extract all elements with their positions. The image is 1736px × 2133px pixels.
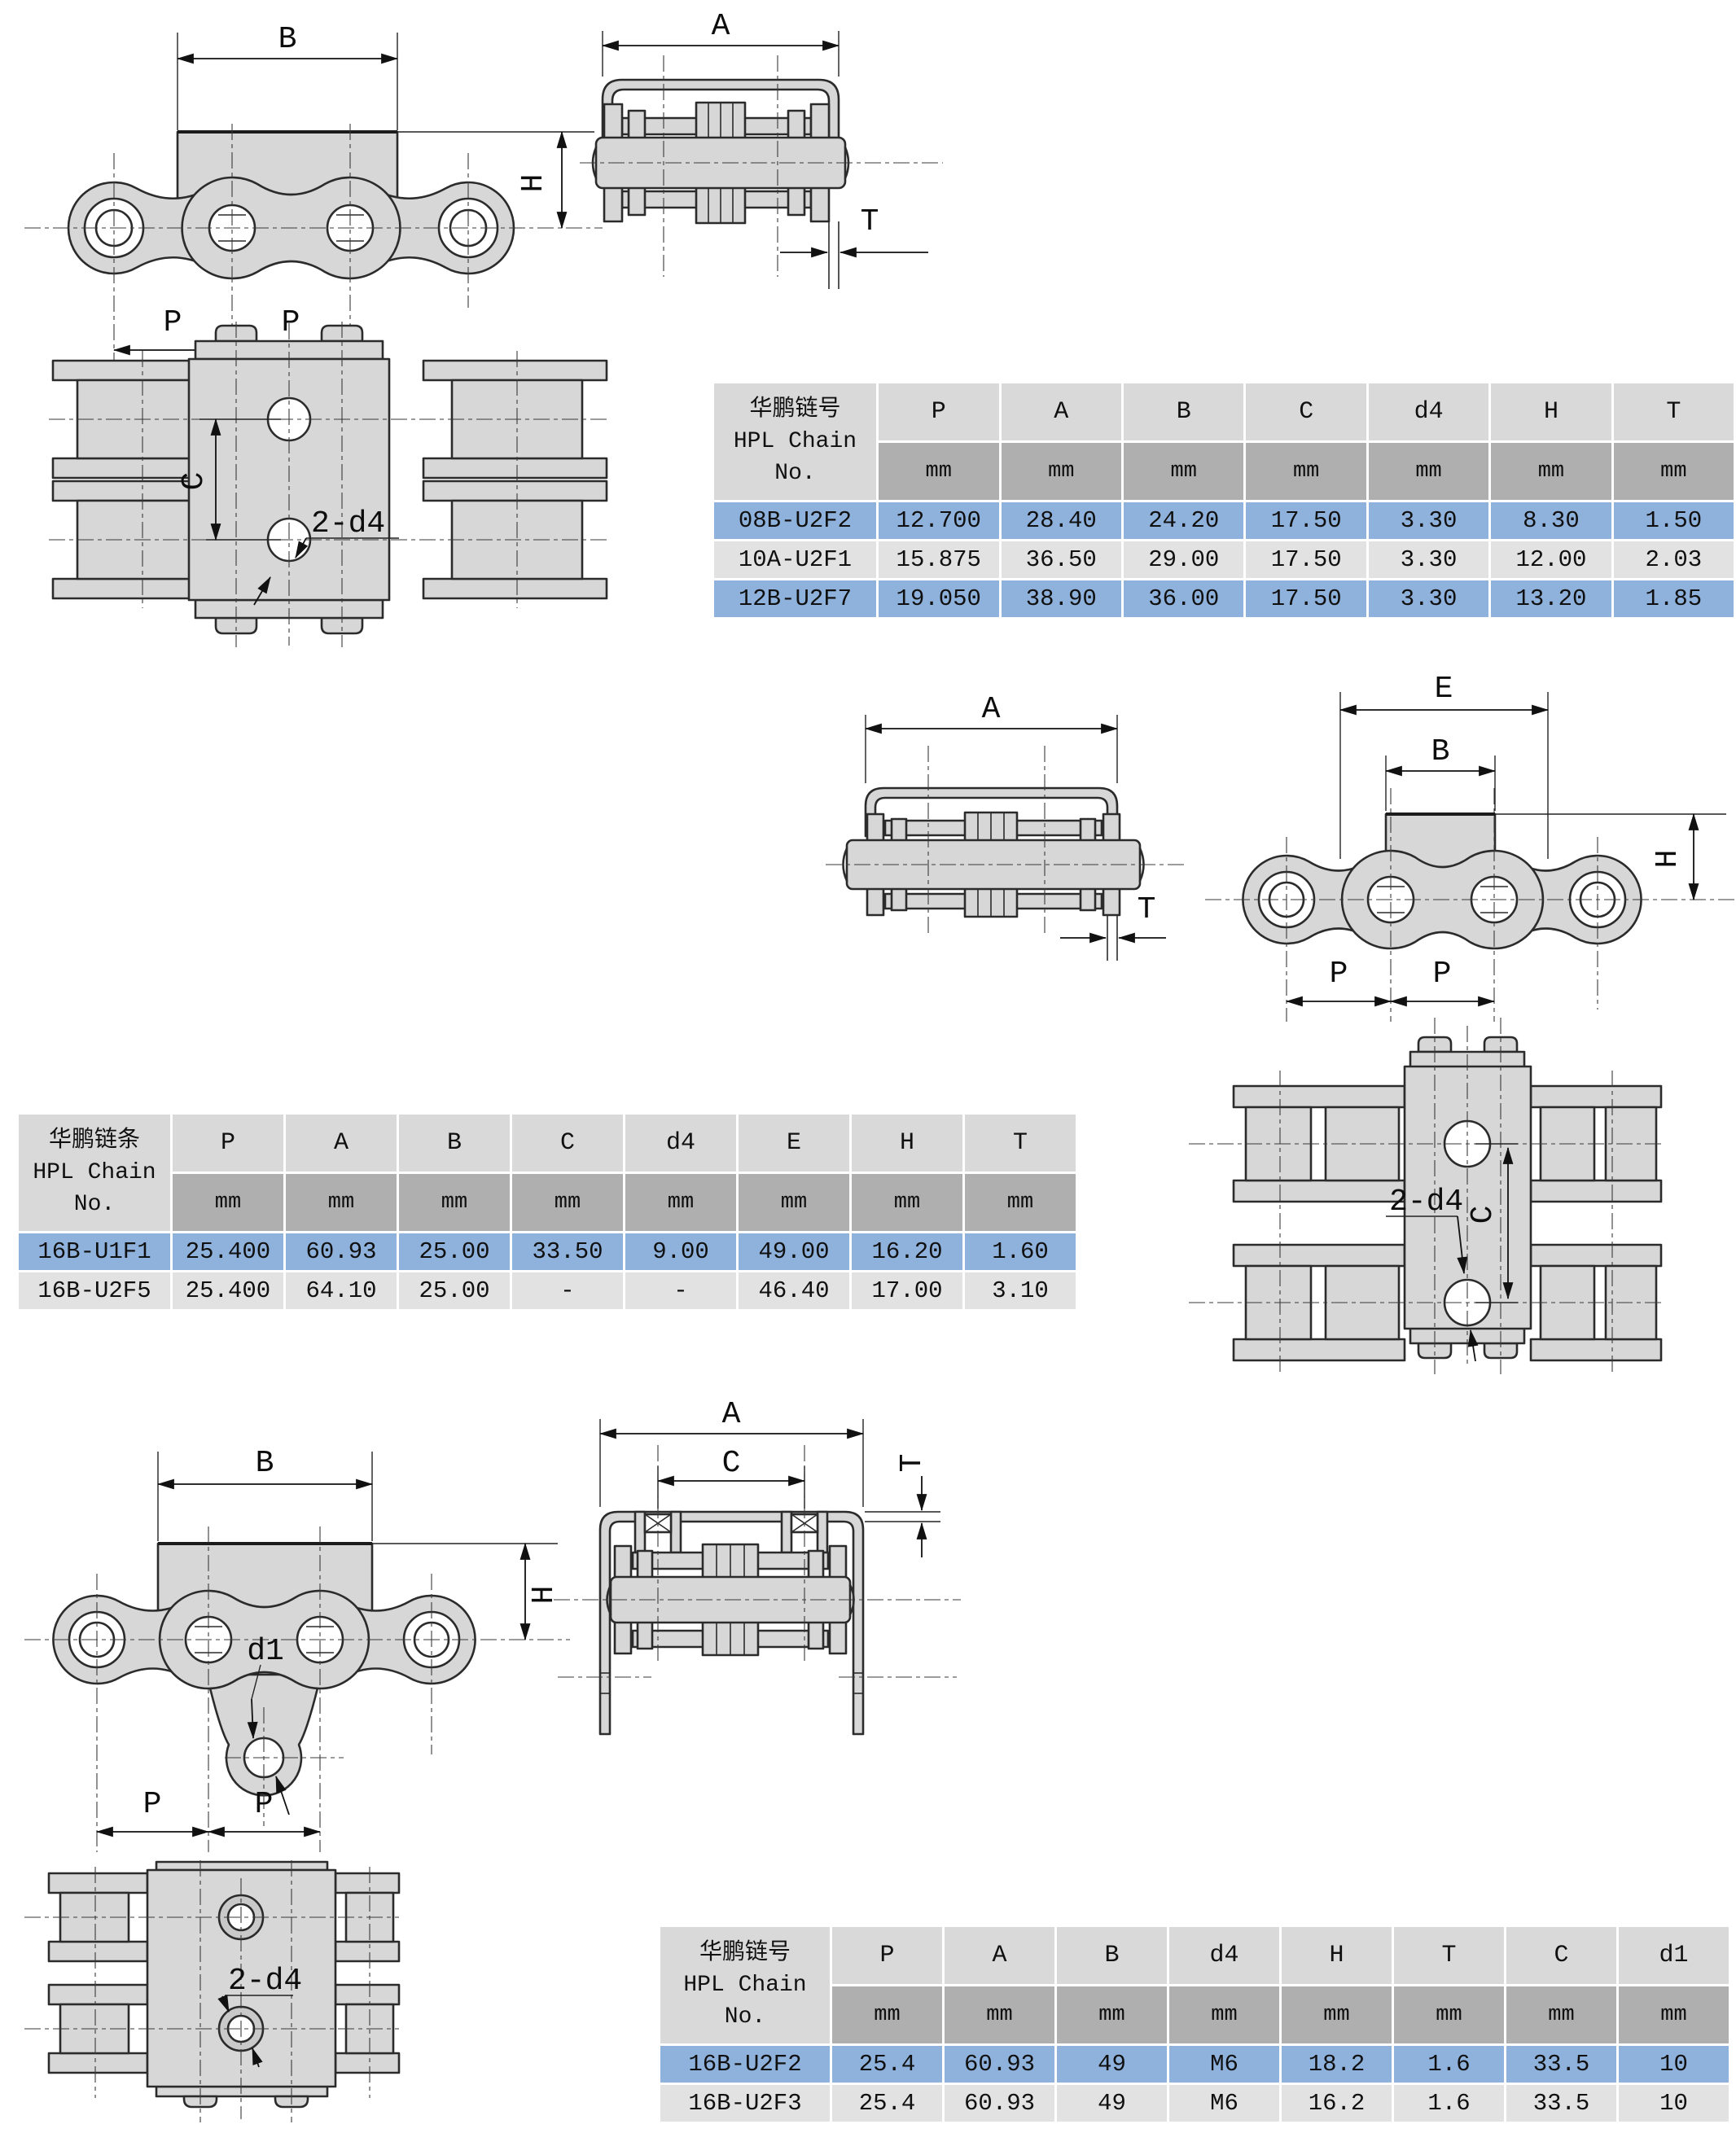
unit-cell: mm <box>1002 443 1121 500</box>
dim-label-t: T <box>895 1454 930 1473</box>
value-cell: 46.40 <box>739 1272 849 1309</box>
col-header: d4 <box>1169 1927 1279 1984</box>
value-cell: 9.00 <box>625 1233 736 1270</box>
dim-label-e: E <box>1435 672 1453 707</box>
spec-table-1: 华鹏链号HPL ChainNo. P A B C d4 H T mm mm mm… <box>712 381 1736 620</box>
value-cell: 1.6 <box>1394 2085 1504 2122</box>
value-cell: 25.00 <box>399 1272 510 1309</box>
table-row: 16B-U1F1 25.400 60.93 25.00 33.50 9.00 4… <box>19 1233 1076 1270</box>
diagram-plan-view-bottom: 2-d4 <box>24 1860 399 2133</box>
unit-cell: mm <box>1506 1986 1616 2043</box>
value-cell: 33.5 <box>1506 2085 1616 2122</box>
dim-label-c: C <box>177 472 212 491</box>
unit-cell: mm <box>1246 443 1366 500</box>
col-header: C <box>1506 1927 1616 1984</box>
table-row: 16B-U2F3 25.4 60.93 49 M6 16.2 1.6 33.5 … <box>660 2085 1729 2122</box>
dim-label-b: B <box>278 22 297 57</box>
unit-cell: mm <box>286 1174 397 1231</box>
value-cell: 49.00 <box>739 1233 849 1270</box>
diagram-end-view-bottom: A C T <box>554 1396 961 1779</box>
col-header: P <box>173 1115 283 1172</box>
value-cell: 17.50 <box>1246 580 1366 617</box>
dim-label-a: A <box>722 1397 741 1432</box>
diagram-side-view-top: B H P P <box>24 8 603 374</box>
value-cell: 8.30 <box>1491 502 1611 539</box>
diagram-plan-view-middle: C 2-d4 <box>1189 1001 1661 1376</box>
unit-cell: mm <box>1282 1986 1392 2043</box>
value-cell: 33.5 <box>1506 2046 1616 2083</box>
table-row: 16B-U2F2 25.4 60.93 49 M6 18.2 1.6 33.5 … <box>660 2046 1729 2083</box>
col-header: T <box>1394 1927 1504 1984</box>
diagram-plan-view-top: C 2-d4 <box>49 322 611 647</box>
dim-label-h: H <box>516 174 551 193</box>
unit-cell: mm <box>1124 443 1243 500</box>
unit-cell: mm <box>965 1174 1076 1231</box>
chain-side-shape <box>68 132 514 278</box>
value-cell: 25.4 <box>832 2046 942 2083</box>
dim-label-p2: P <box>255 1787 274 1822</box>
chain-plan-shape <box>49 1862 399 2107</box>
value-cell: 60.93 <box>286 1233 397 1270</box>
chain-no-cell: 16B-U2F2 <box>660 2046 830 2083</box>
col-header: A <box>945 1927 1054 1984</box>
dim-label-2d4: 2-d4 <box>228 1964 302 1999</box>
value-cell: 49 <box>1057 2085 1167 2122</box>
unit-cell: mm <box>1614 443 1734 500</box>
chain-end-shape <box>593 80 848 289</box>
value-cell: 3.30 <box>1369 502 1488 539</box>
col-header: A <box>286 1115 397 1172</box>
value-cell: - <box>512 1272 623 1309</box>
col-header: B <box>1057 1927 1167 1984</box>
chain-no-cell: 16B-U2F5 <box>19 1272 170 1309</box>
col-header: E <box>739 1115 849 1172</box>
value-cell: 10 <box>1619 2046 1729 2083</box>
chain-end-shape <box>844 788 1144 961</box>
col-header: H <box>1491 383 1611 440</box>
value-cell: 36.00 <box>1124 580 1243 617</box>
value-cell: 16.2 <box>1282 2085 1392 2122</box>
unit-cell: mm <box>1169 1986 1279 2043</box>
value-cell: 17.50 <box>1246 502 1366 539</box>
unit-cell: mm <box>1057 1986 1167 2043</box>
chain-side-shape <box>1243 814 1641 948</box>
value-cell: 18.2 <box>1282 2046 1392 2083</box>
table-header-row: 华鹏链号HPL ChainNo. P A B C d4 H T <box>714 383 1734 440</box>
table-header-row: 华鹏链号HPL ChainNo. P A B d4 H T C d1 <box>660 1927 1729 1984</box>
table-row: 08B-U2F2 12.700 28.40 24.20 17.50 3.30 8… <box>714 502 1734 539</box>
unit-cell: mm <box>852 1174 962 1231</box>
chain-no-cell: 16B-U2F3 <box>660 2085 830 2122</box>
dim-label-p1: P <box>1330 957 1348 992</box>
value-cell: 49 <box>1057 2046 1167 2083</box>
dim-label-d1: d1 <box>247 1634 284 1669</box>
unit-cell: mm <box>945 1986 1054 2043</box>
dim-label-b: B <box>1431 734 1450 769</box>
diagram-side-view-bottom: B H d1 P P <box>24 1413 570 1856</box>
chain-plan-shape <box>53 326 607 633</box>
dim-label-p2: P <box>1433 957 1452 992</box>
value-cell: 38.90 <box>1002 580 1121 617</box>
value-cell: 15.875 <box>879 541 999 578</box>
table-header-row: 华鹏链条HPL ChainNo. P A B C d4 E H T <box>19 1115 1076 1172</box>
unit-cell: mm <box>399 1174 510 1231</box>
value-cell: 29.00 <box>1124 541 1243 578</box>
unit-cell: mm <box>1491 443 1611 500</box>
col-header: P <box>879 383 999 440</box>
chain-no-cell: 08B-U2F2 <box>714 502 876 539</box>
value-cell: 3.30 <box>1369 580 1488 617</box>
value-cell: 1.6 <box>1394 2046 1504 2083</box>
value-cell: 16.20 <box>852 1233 962 1270</box>
value-cell: 25.400 <box>173 1233 283 1270</box>
col-header: H <box>852 1115 962 1172</box>
value-cell: 17.00 <box>852 1272 962 1309</box>
value-cell: 1.85 <box>1614 580 1734 617</box>
col-header: T <box>1614 383 1734 440</box>
dim-label-2d4: 2-d4 <box>311 506 385 541</box>
value-cell: 13.20 <box>1491 580 1611 617</box>
value-cell: 1.60 <box>965 1233 1076 1270</box>
unit-cell: mm <box>512 1174 623 1231</box>
col-header: T <box>965 1115 1076 1172</box>
chain-no-cell: 10A-U2F1 <box>714 541 876 578</box>
unit-cell: mm <box>173 1174 283 1231</box>
dim-label-a: A <box>982 692 1001 727</box>
unit-cell: mm <box>739 1174 849 1231</box>
unit-cell: mm <box>1619 1986 1729 2043</box>
value-cell: 17.50 <box>1246 541 1366 578</box>
dimensions: A C T <box>600 1397 940 1557</box>
unit-cell: mm <box>832 1986 942 2043</box>
value-cell: 24.20 <box>1124 502 1243 539</box>
value-cell: M6 <box>1169 2046 1279 2083</box>
col-header: C <box>1246 383 1366 440</box>
dim-label-b: B <box>256 1446 274 1481</box>
value-cell: 19.050 <box>879 580 999 617</box>
dim-label-p1: P <box>143 1787 162 1822</box>
dim-label-2d4: 2-d4 <box>1389 1185 1463 1220</box>
chain-no-header: 华鹏链号HPL ChainNo. <box>660 1927 830 2043</box>
dim-label-c: C <box>1466 1206 1501 1224</box>
col-header: d4 <box>1369 383 1488 440</box>
value-cell: 28.40 <box>1002 502 1121 539</box>
value-cell: 25.4 <box>832 2085 942 2122</box>
chain-no-cell: 12B-U2F7 <box>714 580 876 617</box>
chain-no-header: 华鹏链条HPL ChainNo. <box>19 1115 170 1231</box>
value-cell: 12.00 <box>1491 541 1611 578</box>
col-header: d1 <box>1619 1927 1729 1984</box>
col-header: H <box>1282 1927 1392 1984</box>
value-cell: 60.93 <box>945 2085 1054 2122</box>
chain-end-shape <box>600 1512 863 1734</box>
unit-cell: mm <box>1394 1986 1504 2043</box>
value-cell: 64.10 <box>286 1272 397 1309</box>
value-cell: 3.10 <box>965 1272 1076 1309</box>
table-row: 16B-U2F5 25.400 64.10 25.00 - - 46.40 17… <box>19 1272 1076 1309</box>
value-cell: 3.30 <box>1369 541 1488 578</box>
col-header: B <box>1124 383 1243 440</box>
value-cell: 36.50 <box>1002 541 1121 578</box>
unit-cell: mm <box>625 1174 736 1231</box>
dim-label-h: H <box>1651 850 1686 869</box>
spec-table-3: 华鹏链号HPL ChainNo. P A B d4 H T C d1 mm mm… <box>658 1925 1731 2124</box>
diagram-end-view-top: A T <box>586 8 945 358</box>
diagram-end-view-middle: A T <box>831 692 1189 985</box>
dimensions: E B H P P <box>1287 672 1726 1001</box>
chain-no-header: 华鹏链号HPL ChainNo. <box>714 383 876 500</box>
unit-cell: mm <box>879 443 999 500</box>
table-row: 10A-U2F1 15.875 36.50 29.00 17.50 3.30 1… <box>714 541 1734 578</box>
value-cell: 1.50 <box>1614 502 1734 539</box>
value-cell: 12.700 <box>879 502 999 539</box>
value-cell: 25.400 <box>173 1272 283 1309</box>
col-header: d4 <box>625 1115 736 1172</box>
col-header: B <box>399 1115 510 1172</box>
table-row: 12B-U2F7 19.050 38.90 36.00 17.50 3.30 1… <box>714 580 1734 617</box>
dim-label-a: A <box>712 9 730 44</box>
value-cell: 2.03 <box>1614 541 1734 578</box>
value-cell: M6 <box>1169 2085 1279 2122</box>
value-cell: 25.00 <box>399 1233 510 1270</box>
diagram-side-view-middle: E B H P P <box>1205 651 1736 1026</box>
value-cell: 10 <box>1619 2085 1729 2122</box>
unit-cell: mm <box>1369 443 1488 500</box>
value-cell: 60.93 <box>945 2046 1054 2083</box>
dim-label-t: T <box>1138 892 1156 927</box>
value-cell: 33.50 <box>512 1233 623 1270</box>
col-header: C <box>512 1115 623 1172</box>
table-unit-row: mm mm mm mm mm mm mm mm <box>19 1174 1076 1231</box>
value-cell: - <box>625 1272 736 1309</box>
col-header: A <box>1002 383 1121 440</box>
chain-no-cell: 16B-U1F1 <box>19 1233 170 1270</box>
catalog-page: B H P P <box>0 0 1736 2133</box>
dim-label-t: T <box>861 204 879 239</box>
col-header: P <box>832 1927 942 1984</box>
spec-table-2: 华鹏链条HPL ChainNo. P A B C d4 E H T mm mm … <box>16 1112 1078 1312</box>
dim-label-c: C <box>722 1446 741 1481</box>
